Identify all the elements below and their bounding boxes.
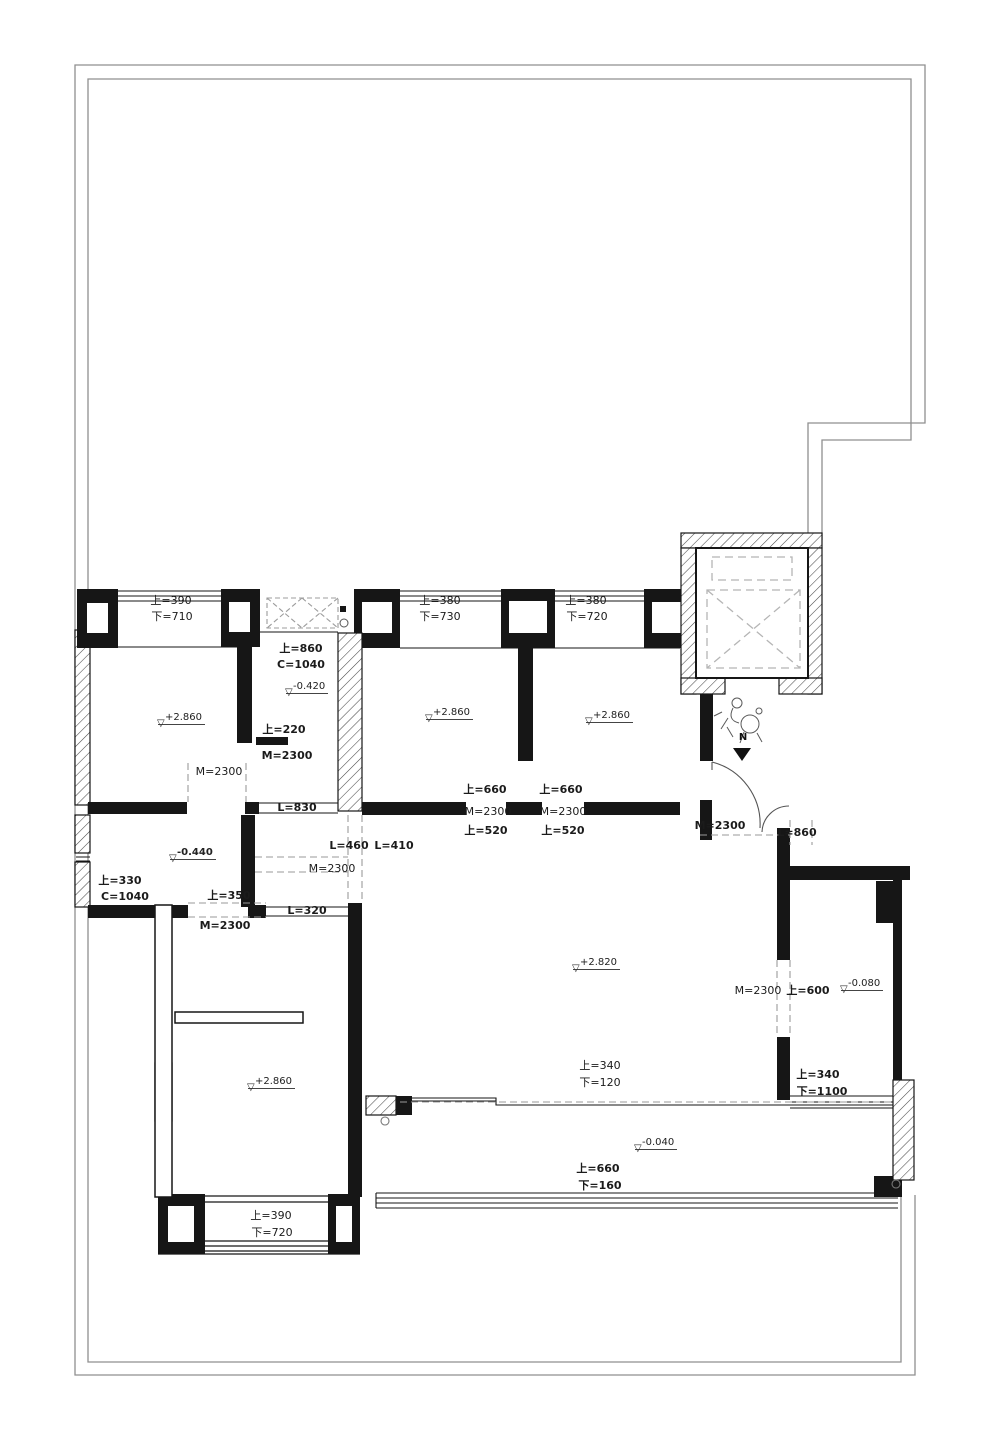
dimension-label: M=2300 — [309, 862, 356, 875]
dimension-label: 上=380 — [419, 594, 460, 607]
marker-circle — [340, 619, 348, 627]
elevation-mark: ▽ +2.860 — [248, 1076, 295, 1089]
elevation-triangle-icon: ▽ — [285, 687, 293, 699]
dimension-label: L=410 — [374, 839, 413, 852]
elevation-mark: ▽ +2.860 — [426, 707, 473, 720]
dimension-label: 下=710 — [151, 610, 192, 623]
dimension-label: 上=380 — [565, 594, 606, 607]
dimension-label: 上=390 — [150, 594, 191, 607]
dimension-label: 上=330 — [98, 874, 141, 887]
elevation-triangle-icon: ▽ — [425, 713, 433, 725]
exterior-hatched-walls — [75, 630, 90, 907]
dimension-label: 上=350 — [207, 889, 250, 902]
wall-dot — [340, 606, 346, 612]
dimension-label: 上=340 — [579, 1059, 620, 1072]
dimension-label: C=1040 — [277, 658, 325, 671]
dimension-label: 上=660 — [576, 1162, 619, 1175]
dimension-label: M=2300 — [196, 765, 243, 778]
elevation-triangle-icon: ▽ — [840, 984, 848, 996]
plan-linework — [0, 0, 1000, 1440]
dimension-label: 上=660 — [539, 783, 582, 796]
elevation-mark: ▽ -0.420 — [286, 681, 328, 694]
marker-circle — [381, 1117, 389, 1125]
dimension-label: 下=720 — [251, 1226, 292, 1239]
dimension-label: M=2300 — [695, 819, 746, 832]
dimension-label: 上=390 — [250, 1209, 291, 1222]
dimension-label: L=460 — [329, 839, 368, 852]
elevation-triangle-icon: ▽ — [247, 1082, 255, 1094]
elevation-mark: ▽ -0.440 — [170, 847, 216, 860]
dimension-label: L=860 — [777, 826, 816, 839]
elevation-mark: ▽ +2.860 — [158, 712, 205, 725]
dimension-label: 上=860 — [279, 642, 322, 655]
north-arrow-icon: N — [734, 733, 752, 743]
elevation-mark: ▽ +2.860 — [586, 710, 633, 723]
dimension-label: L=830 — [277, 801, 316, 814]
dimension-label: L=320 — [287, 904, 326, 917]
elevation-mark: ▽ -0.080 — [841, 978, 883, 991]
dimension-label: M=2300 — [735, 984, 782, 997]
dimension-label: 上=520 — [541, 824, 584, 837]
elevation-mark: ▽ +2.820 — [573, 957, 620, 970]
window-x-symbol — [267, 598, 338, 628]
dimension-label: 下=720 — [566, 610, 607, 623]
dimension-label: 下=1100 — [797, 1085, 848, 1098]
dimension-label: M=2300 — [540, 805, 587, 818]
dimension-label: M=2300 — [200, 919, 251, 932]
dimension-label: 上=660 — [463, 783, 506, 796]
elevator-car-symbol — [707, 557, 800, 668]
north-arrow-head-shape — [733, 748, 751, 761]
floor-plan-canvas: 上=390 下=710 上=380 下=730 上=380 下=720 上=86… — [0, 0, 1000, 1440]
dimension-label: 上=340 — [796, 1068, 839, 1081]
dimension-label: 上=520 — [464, 824, 507, 837]
elevation-triangle-icon: ▽ — [157, 718, 165, 730]
dimension-label: 下=730 — [419, 610, 460, 623]
dimension-label: C=1040 — [101, 890, 149, 903]
balcony-railing — [376, 1193, 898, 1208]
elevation-triangle-icon: ▽ — [585, 716, 593, 728]
dimension-label: 上=600 — [786, 984, 829, 997]
light-walls — [155, 905, 303, 1197]
elevator-shaft — [681, 533, 822, 694]
elevation-triangle-icon: ▽ — [634, 1143, 642, 1155]
dimension-label: 下=160 — [578, 1179, 621, 1192]
elevation-triangle-icon: ▽ — [572, 963, 580, 975]
dimension-label: M=2300 — [465, 805, 512, 818]
elevation-triangle-icon: ▽ — [169, 853, 177, 865]
north-arrow-label: N — [734, 733, 752, 743]
dimension-label: 上=220 — [262, 723, 305, 736]
dimension-label: M=2300 — [262, 749, 313, 762]
dimension-label: 下=120 — [579, 1076, 620, 1089]
elevation-mark: ▽ -0.040 — [635, 1137, 677, 1150]
